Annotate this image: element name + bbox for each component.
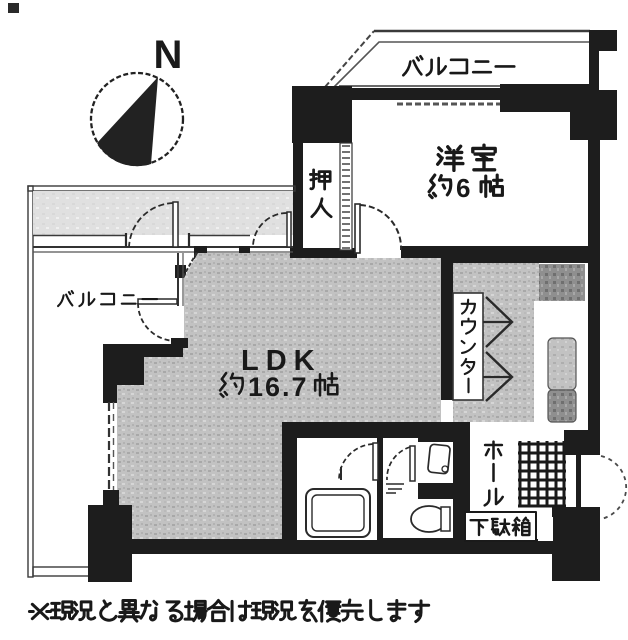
svg-text:N: N (154, 33, 183, 77)
svg-text:6: 6 (456, 173, 470, 203)
svg-text:16.7: 16.7 (248, 372, 309, 402)
